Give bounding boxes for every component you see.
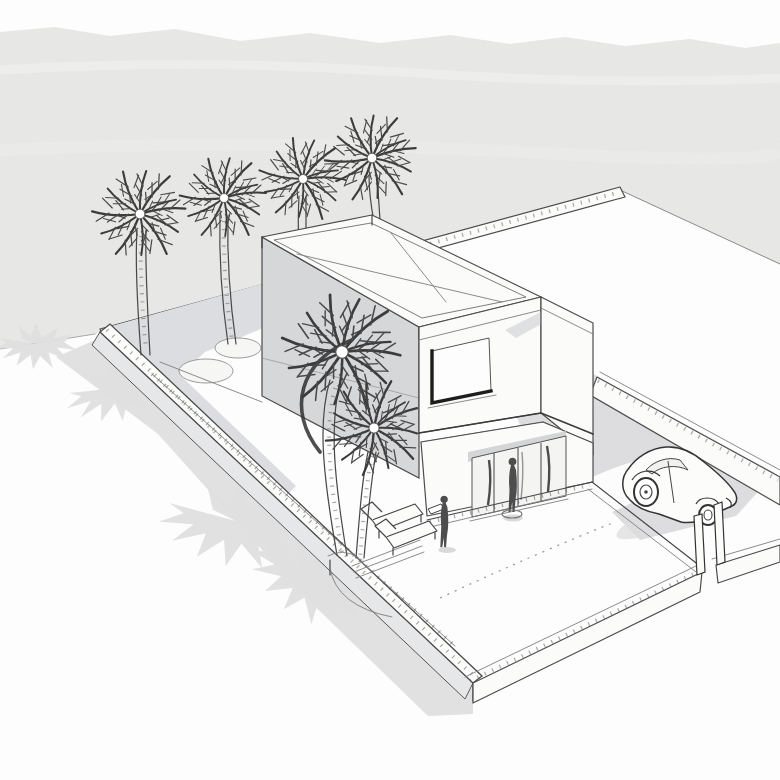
planting-circle [179,359,233,383]
sketch-canvas: Villa concept sketch Hand-drawn aerial p… [0,0,780,780]
figure-shadow [438,547,456,553]
car-front-wheel-center [644,490,648,494]
planting-circle [215,338,261,358]
villa-sketch-svg: Villa concept sketch Hand-drawn aerial p… [0,0,780,780]
